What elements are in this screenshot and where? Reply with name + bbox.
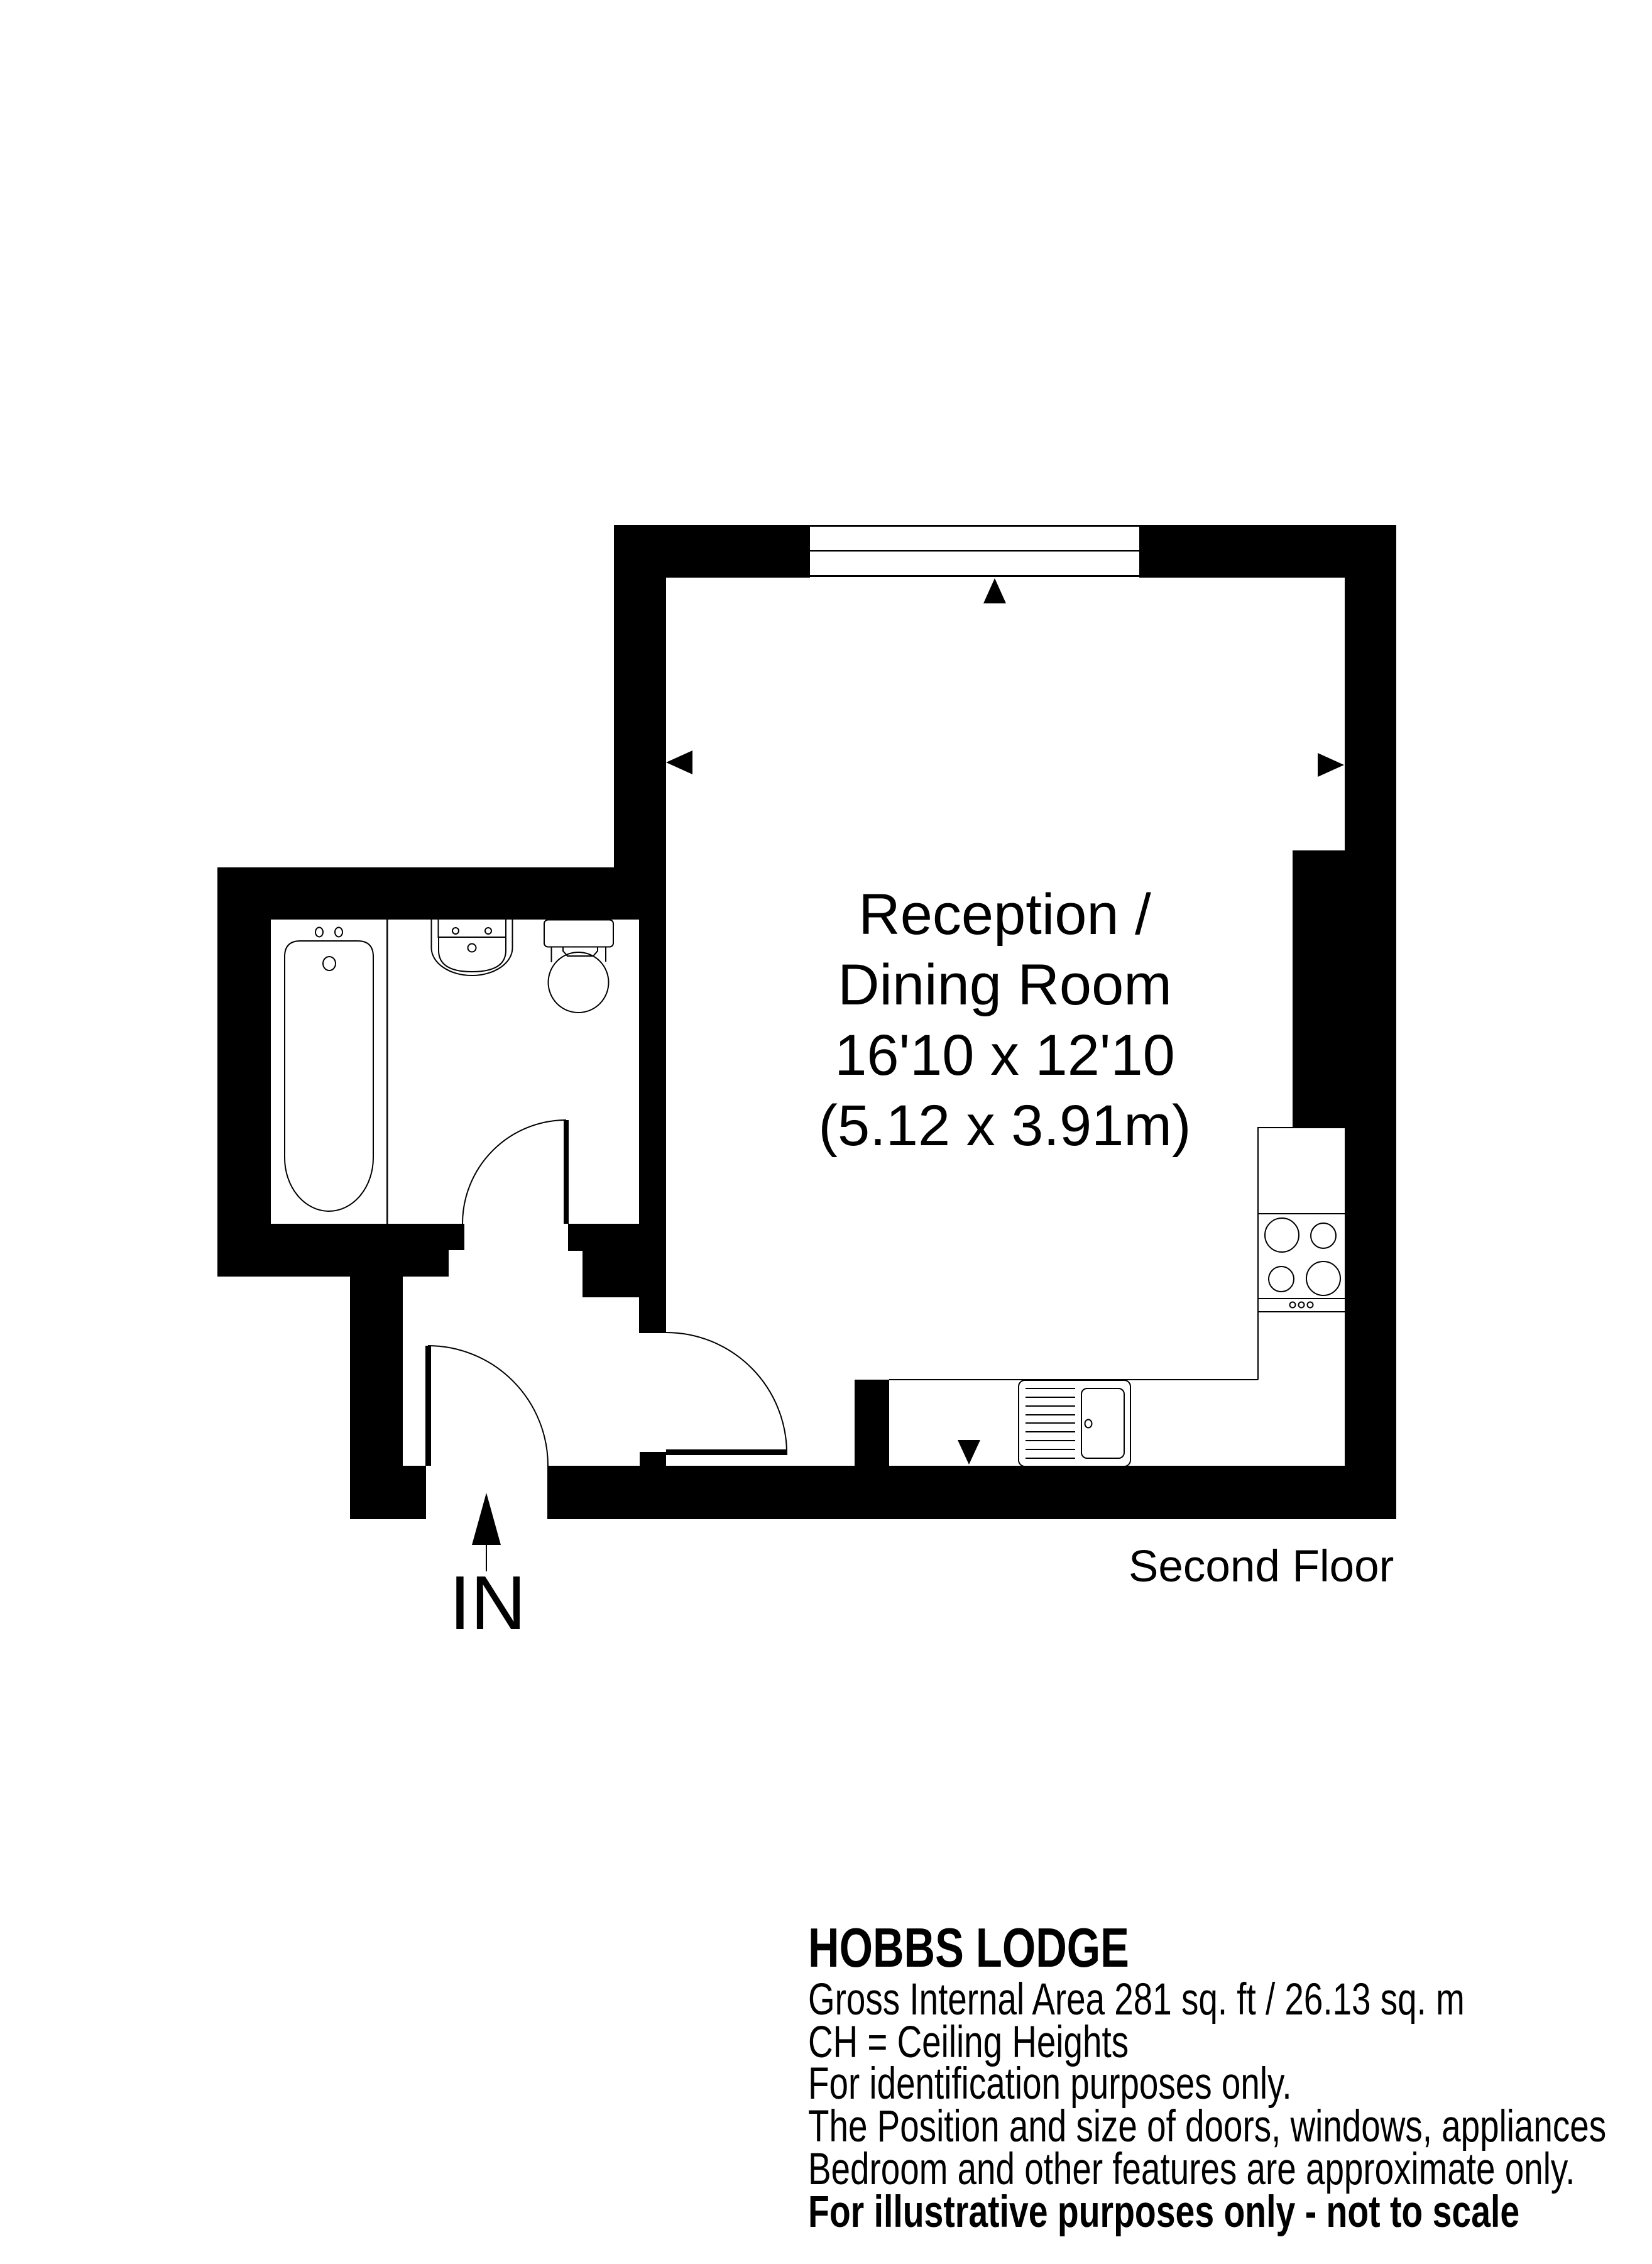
svg-text:For identification purposes on: For identification purposes only. xyxy=(808,2059,1292,2108)
svg-text:16'10 x 12'10: 16'10 x 12'10 xyxy=(834,1023,1175,1087)
svg-text:For illustrative purposes only: For illustrative purposes only - not to … xyxy=(808,2187,1519,2236)
svg-text:The Position and size of doors: The Position and size of doors, windows,… xyxy=(808,2102,1606,2151)
svg-text:(5.12 x 3.91m): (5.12 x 3.91m) xyxy=(818,1094,1191,1158)
svg-text:Reception /: Reception / xyxy=(858,882,1151,947)
svg-text:IN: IN xyxy=(449,1560,526,1646)
svg-text:Dining Room: Dining Room xyxy=(838,953,1172,1017)
svg-text:Gross Internal Area 281 sq. ft: Gross Internal Area 281 sq. ft / 26.13 s… xyxy=(808,1975,1465,2024)
svg-text:Second Floor: Second Floor xyxy=(1129,1542,1394,1591)
svg-text:HOBBS LODGE: HOBBS LODGE xyxy=(808,1917,1129,1979)
